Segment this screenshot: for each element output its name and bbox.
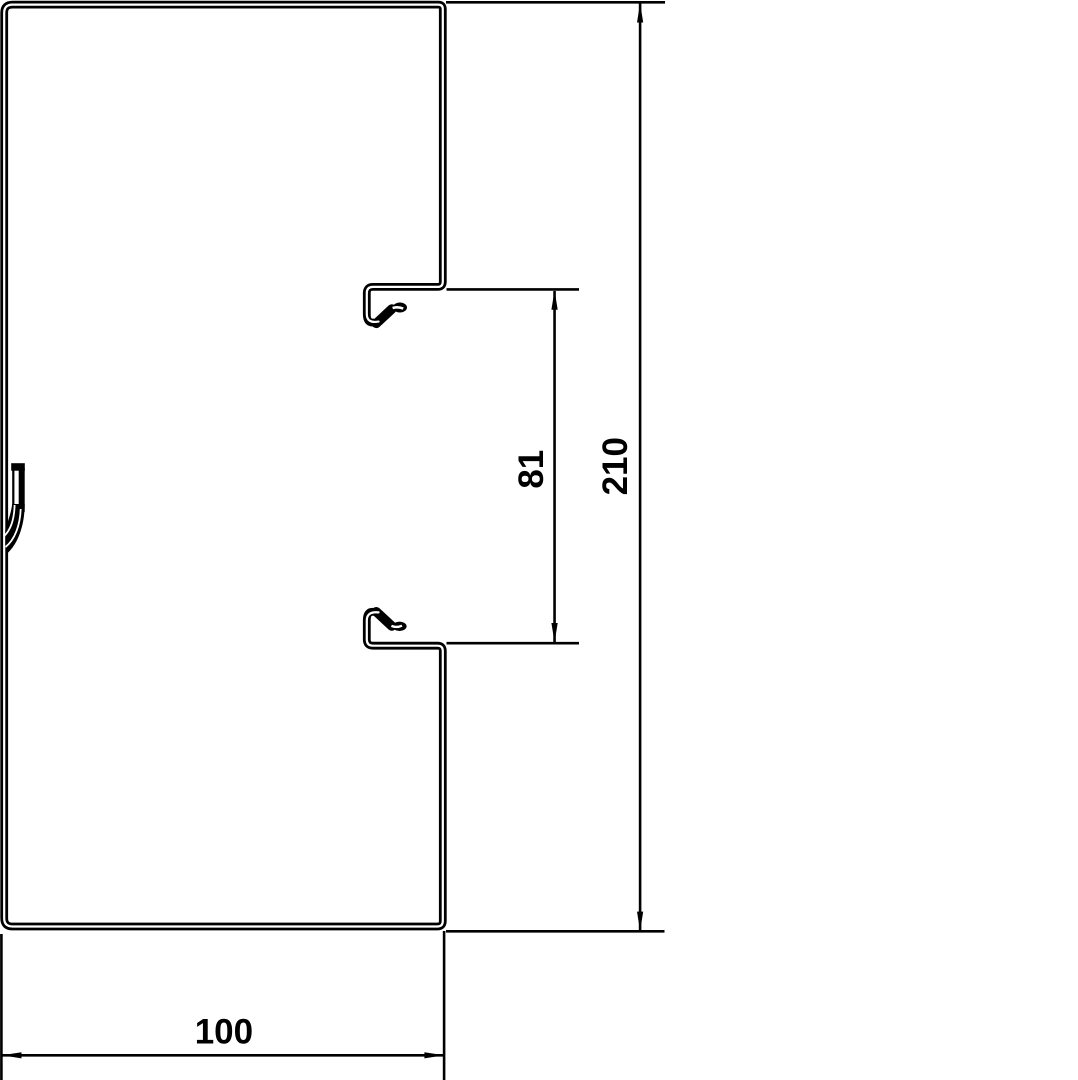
svg-text:100: 100 (195, 1012, 253, 1051)
svg-text:81: 81 (512, 450, 551, 489)
svg-text:210: 210 (596, 437, 635, 495)
